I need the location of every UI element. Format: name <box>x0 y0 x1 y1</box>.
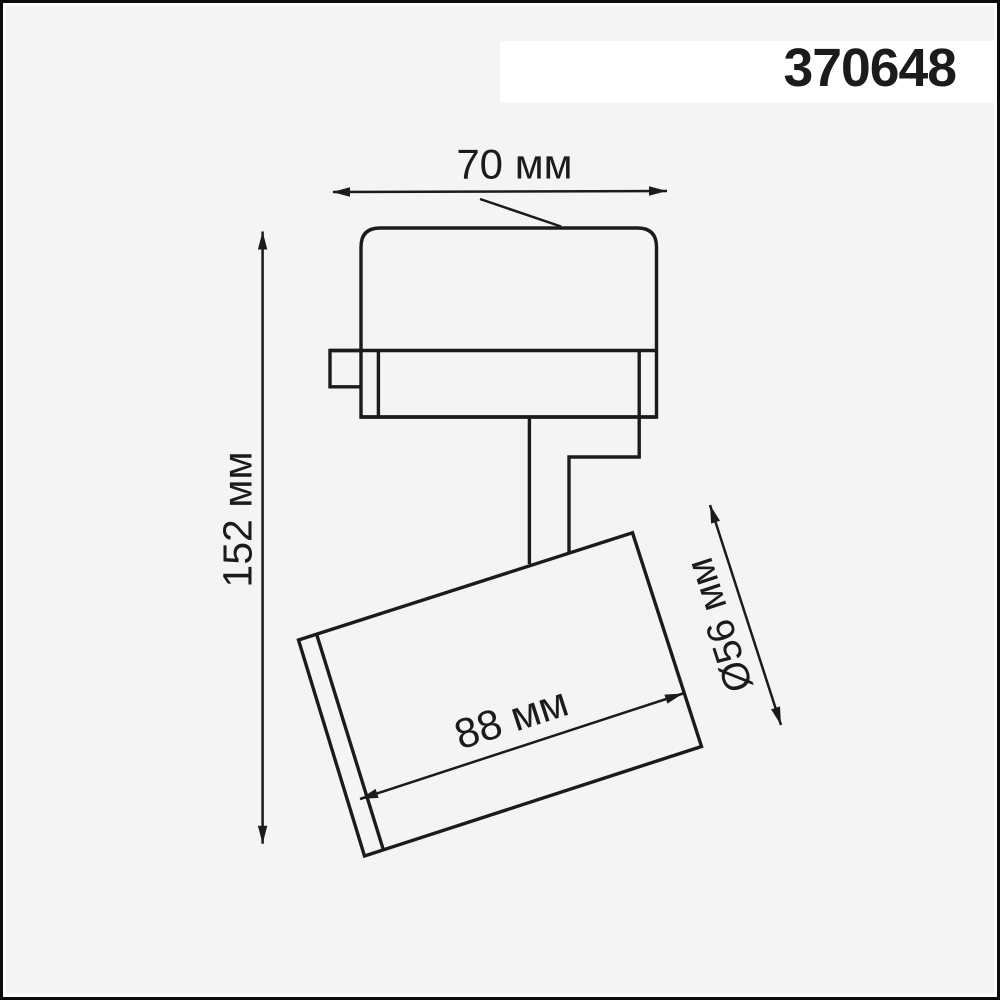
svg-text:370648: 370648 <box>783 39 956 98</box>
svg-text:70 мм: 70 мм <box>456 141 572 188</box>
svg-text:152 мм: 152 мм <box>215 451 261 587</box>
